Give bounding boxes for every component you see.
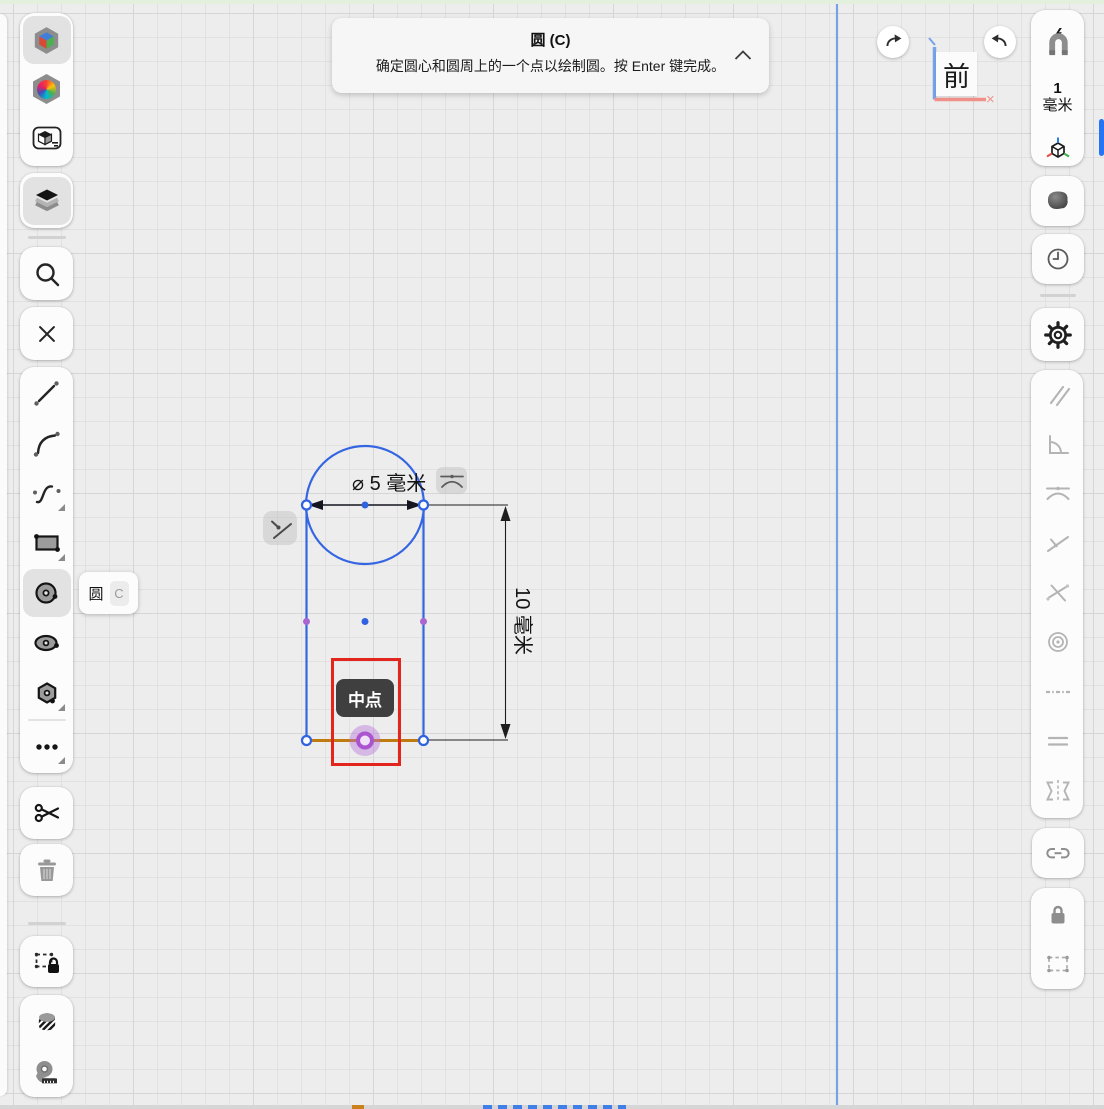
appearance-icon (32, 74, 62, 104)
tool-instruction-banner: 圆 (C) 确定圆心和圆周上的一个点以绘制圆。按 Enter 键完成。 (332, 18, 769, 93)
measure-tape-icon (32, 1057, 62, 1087)
point-on-line-badge[interactable] (263, 511, 297, 545)
tools-divider (28, 719, 66, 721)
line-tool-button[interactable] (23, 369, 71, 417)
tangent-icon (1043, 479, 1073, 509)
collapse-banner-button[interactable] (733, 48, 753, 62)
concentric-icon (1043, 627, 1073, 657)
settings-button[interactable] (1031, 308, 1084, 361)
ellipse-tool-icon (32, 628, 62, 658)
shaded-view-icon (1042, 185, 1074, 217)
cad-canvas[interactable]: ⌀ 5 毫米 10 毫米 中点 圆 (C) 确定圆心和圆周上的一个点以绘制圆。按… (0, 0, 1104, 1109)
construction-toggle-button[interactable] (1034, 668, 1082, 716)
grid-size-value: 1 (1034, 80, 1082, 97)
symmetric-icon (1043, 776, 1073, 806)
isometric-view-icon (31, 123, 63, 153)
intersection-icon (1043, 578, 1073, 608)
front-view-text: 前 (943, 55, 970, 94)
selection-box-icon (1043, 949, 1073, 979)
line-midpoint-left[interactable] (303, 618, 310, 625)
fill-measure-group (20, 995, 73, 1097)
magnet-icon (1042, 26, 1074, 58)
diameter-dimension-label[interactable]: ⌀ 5 毫米 (352, 467, 426, 496)
circle-tool-shortcut: C (110, 581, 129, 606)
banner-title: 圆 (C) (332, 29, 769, 50)
snap-tooltip: 中点 (336, 679, 394, 717)
layers-button[interactable] (23, 177, 71, 225)
x-axis-mark: × (986, 91, 995, 108)
parallel-icon (1043, 380, 1073, 410)
perpendicular-icon (1043, 430, 1073, 460)
equal-constraint-button[interactable] (1034, 717, 1082, 765)
axis-orientation-button[interactable] (1034, 128, 1082, 172)
selection-box-button[interactable] (1034, 940, 1082, 988)
redo-button[interactable] (877, 26, 909, 58)
submenu-indicator (58, 554, 65, 561)
view-panel-group (20, 13, 73, 166)
chevron-up-icon (734, 50, 752, 61)
spline-tool-button[interactable] (23, 469, 71, 517)
concentric-constraint-button[interactable] (1034, 618, 1082, 666)
close-icon (34, 321, 60, 347)
more-tools-button[interactable] (23, 724, 71, 770)
view-orientation-label[interactable]: 前 (936, 52, 977, 96)
lock-selection-icon (32, 947, 62, 977)
tangent-constraint-badge[interactable] (436, 467, 467, 494)
orientation-cube-button[interactable] (23, 16, 71, 64)
submenu-indicator (58, 757, 65, 764)
shading-mode-button[interactable] (1031, 176, 1084, 226)
circle-tool-tooltip: 圆 C (79, 572, 138, 614)
measure-button[interactable] (23, 1048, 71, 1096)
banner-description: 确定圆心和圆周上的一个点以绘制圆。按 Enter 键完成。 (332, 56, 769, 76)
lock-icon (1043, 899, 1073, 929)
trim-button[interactable] (20, 787, 73, 839)
circle-tool-icon (32, 578, 62, 608)
toolbar-divider (28, 922, 66, 925)
grid-size-unit: 毫米 (1034, 97, 1082, 114)
point-on-line-constraint-button[interactable] (1034, 519, 1082, 567)
gear-icon (1042, 319, 1074, 351)
tangent-constraint-button[interactable] (1034, 470, 1082, 518)
sketch-layer (0, 0, 1104, 1109)
toolbar-divider (1040, 294, 1076, 297)
point-on-line-icon (1043, 528, 1073, 558)
history-button[interactable] (1032, 234, 1084, 284)
hatch-icon (32, 1008, 62, 1038)
snap-grid-group: 1 毫米 (1031, 10, 1084, 166)
draw-tools-group (20, 367, 73, 773)
lock-button[interactable] (1034, 890, 1082, 938)
orientation-cube-icon (31, 25, 62, 56)
close-sketch-button[interactable] (20, 307, 73, 360)
axis-cube-icon (1043, 135, 1073, 165)
snap-tooltip-label: 中点 (348, 686, 382, 711)
tangent-icon (439, 470, 465, 492)
circle-center-point[interactable] (362, 502, 369, 509)
lock-select-group (1031, 888, 1084, 989)
line-tool-icon (32, 378, 62, 408)
construction-line-icon (1043, 677, 1073, 707)
search-icon (32, 259, 62, 289)
hatch-button[interactable] (23, 999, 71, 1047)
appearance-button[interactable] (23, 65, 71, 113)
equal-icon (1043, 726, 1073, 756)
layers-panel (20, 173, 73, 228)
length-dimension[interactable] (429, 505, 511, 740)
rectangle-tool-button[interactable] (23, 519, 71, 567)
delete-button[interactable] (20, 844, 73, 896)
ellipse-tool-button[interactable] (23, 619, 71, 667)
arc-tool-icon (32, 428, 62, 458)
submenu-indicator (58, 704, 65, 711)
isometric-view-button[interactable] (23, 114, 71, 162)
perpendicular-constraint-button[interactable] (1034, 421, 1082, 469)
constraints-group (1031, 370, 1083, 818)
grid-size-display[interactable]: 1 毫米 (1034, 80, 1082, 114)
snap-toggle-button[interactable] (1034, 16, 1082, 68)
parallel-constraint-button[interactable] (1034, 371, 1082, 419)
trash-icon (32, 855, 62, 885)
toolbar-divider (28, 236, 66, 239)
arc-tool-button[interactable] (23, 419, 71, 467)
circle-tool-tooltip-label: 圆 (88, 583, 103, 604)
redo-icon (881, 30, 905, 54)
layers-icon (32, 186, 62, 216)
lock-selection-button[interactable] (20, 936, 73, 987)
polygon-tool-button[interactable] (23, 669, 71, 717)
link-button[interactable] (1032, 828, 1084, 878)
history-clock-icon (1043, 244, 1073, 274)
line-midpoint-right[interactable] (420, 618, 427, 625)
scissors-icon (32, 798, 62, 828)
length-dimension-label[interactable]: 10 毫米 (510, 581, 534, 661)
search-button[interactable] (20, 247, 73, 300)
intersection-constraint-button[interactable] (1034, 569, 1082, 617)
point-on-line-icon (266, 514, 294, 542)
link-icon (1043, 838, 1073, 868)
submenu-indicator (58, 504, 65, 511)
sketch-center-point[interactable] (362, 618, 369, 625)
circle-tool-button[interactable] (23, 569, 71, 617)
symmetric-constraint-button[interactable] (1034, 767, 1082, 815)
